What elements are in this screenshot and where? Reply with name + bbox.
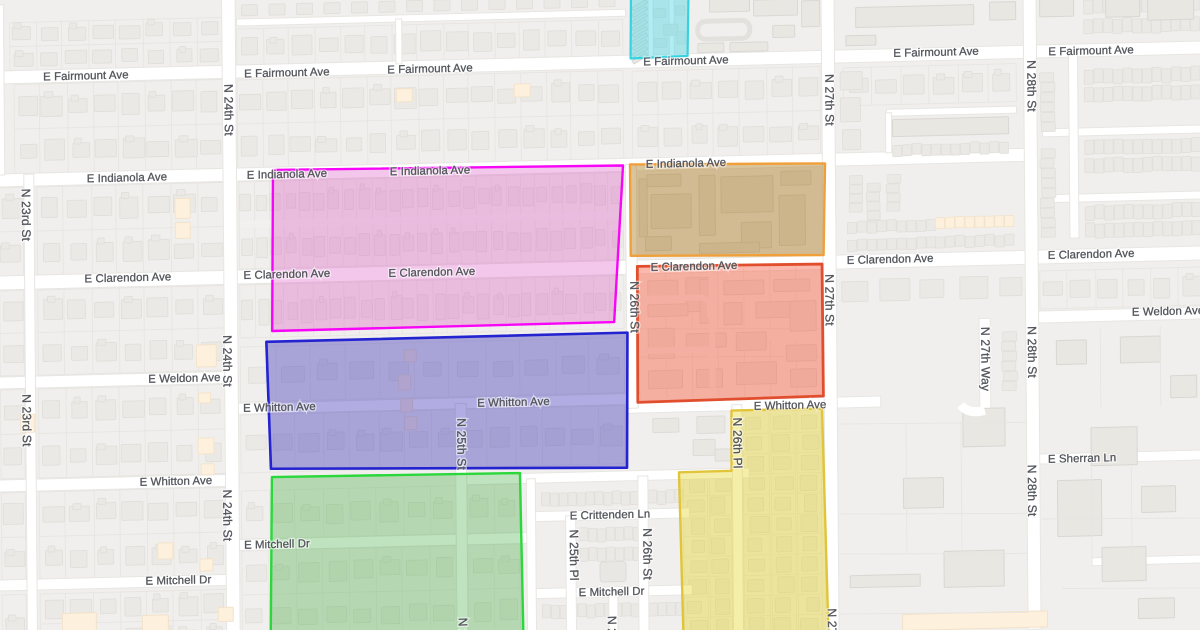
- svg-text:N 28th St: N 28th St: [1025, 465, 1039, 518]
- svg-text:E Fairmount Ave: E Fairmount Ave: [1048, 44, 1134, 58]
- svg-text:E Clarendon Ave: E Clarendon Ave: [243, 268, 330, 282]
- svg-text:E Clarendon Ave: E Clarendon Ave: [388, 266, 475, 280]
- svg-text:E Weldon Ave: E Weldon Ave: [148, 372, 220, 386]
- svg-text:E Indianola Ave: E Indianola Ave: [646, 157, 727, 171]
- svg-text:N 28th St: N 28th St: [1025, 326, 1039, 379]
- svg-text:E Weldon Ave: E Weldon Ave: [1132, 305, 1200, 319]
- svg-text:N 26th Pl: N 26th Pl: [730, 417, 744, 468]
- svg-text:N 27th Way: N 27th Way: [978, 327, 993, 392]
- svg-text:E Sherran Ln: E Sherran Ln: [1048, 452, 1116, 466]
- svg-text:N 27th St: N 27th St: [825, 608, 839, 630]
- svg-text:N 23rd St: N 23rd St: [19, 394, 33, 447]
- svg-text:N 26th St: N 26th St: [640, 528, 654, 581]
- svg-text:E Whitton Ave: E Whitton Ave: [477, 396, 550, 410]
- svg-text:E Whitton Ave: E Whitton Ave: [243, 401, 316, 415]
- svg-text:E Fairmount Ave: E Fairmount Ave: [43, 69, 129, 83]
- svg-text:E Clarendon Ave: E Clarendon Ave: [651, 260, 738, 274]
- svg-text:E Crittenden Ln: E Crittenden Ln: [570, 508, 651, 522]
- svg-text:E Whitton Ave: E Whitton Ave: [754, 399, 827, 413]
- svg-text:E Mitchell Dr: E Mitchell Dr: [145, 574, 211, 588]
- svg-text:E Mitchell Dr: E Mitchell Dr: [244, 538, 310, 552]
- svg-text:E Clarendon Ave: E Clarendon Ave: [847, 253, 934, 267]
- svg-text:N 24th St: N 24th St: [220, 335, 234, 388]
- svg-text:N 27th St: N 27th St: [822, 74, 836, 127]
- svg-text:E Clarendon Ave: E Clarendon Ave: [84, 271, 171, 285]
- svg-text:N 26th St: N 26th St: [627, 281, 641, 334]
- svg-text:N 25th St: N 25th St: [454, 418, 468, 471]
- svg-text:E Whitton Ave: E Whitton Ave: [140, 475, 213, 489]
- svg-text:N 24th St: N 24th St: [220, 489, 234, 542]
- svg-text:N 23rd St: N 23rd St: [19, 188, 33, 241]
- svg-text:E Indianola Ave: E Indianola Ave: [390, 164, 471, 178]
- svg-text:N 24th St: N 24th St: [221, 84, 235, 137]
- svg-text:N 25th Pl: N 25th Pl: [567, 529, 581, 580]
- svg-text:E Indianola Ave: E Indianola Ave: [87, 171, 168, 185]
- svg-text:N 27th St: N 27th St: [822, 274, 836, 327]
- svg-text:E Fairmount Ave: E Fairmount Ave: [643, 54, 729, 68]
- svg-text:E Mitchell Dr: E Mitchell Dr: [579, 586, 645, 600]
- svg-text:E Fairmount Ave: E Fairmount Ave: [387, 62, 473, 76]
- svg-text:E Fairmount Ave: E Fairmount Ave: [893, 46, 979, 60]
- svg-text:N 26th St: N 26th St: [605, 616, 619, 630]
- svg-text:E Indianola Ave: E Indianola Ave: [247, 168, 328, 182]
- svg-text:E Clarendon Ave: E Clarendon Ave: [1048, 248, 1135, 262]
- svg-text:E Fairmount Ave: E Fairmount Ave: [244, 66, 330, 80]
- svg-text:N 28th St: N 28th St: [1024, 60, 1038, 113]
- svg-text:N 25th St: N 25th St: [456, 617, 470, 630]
